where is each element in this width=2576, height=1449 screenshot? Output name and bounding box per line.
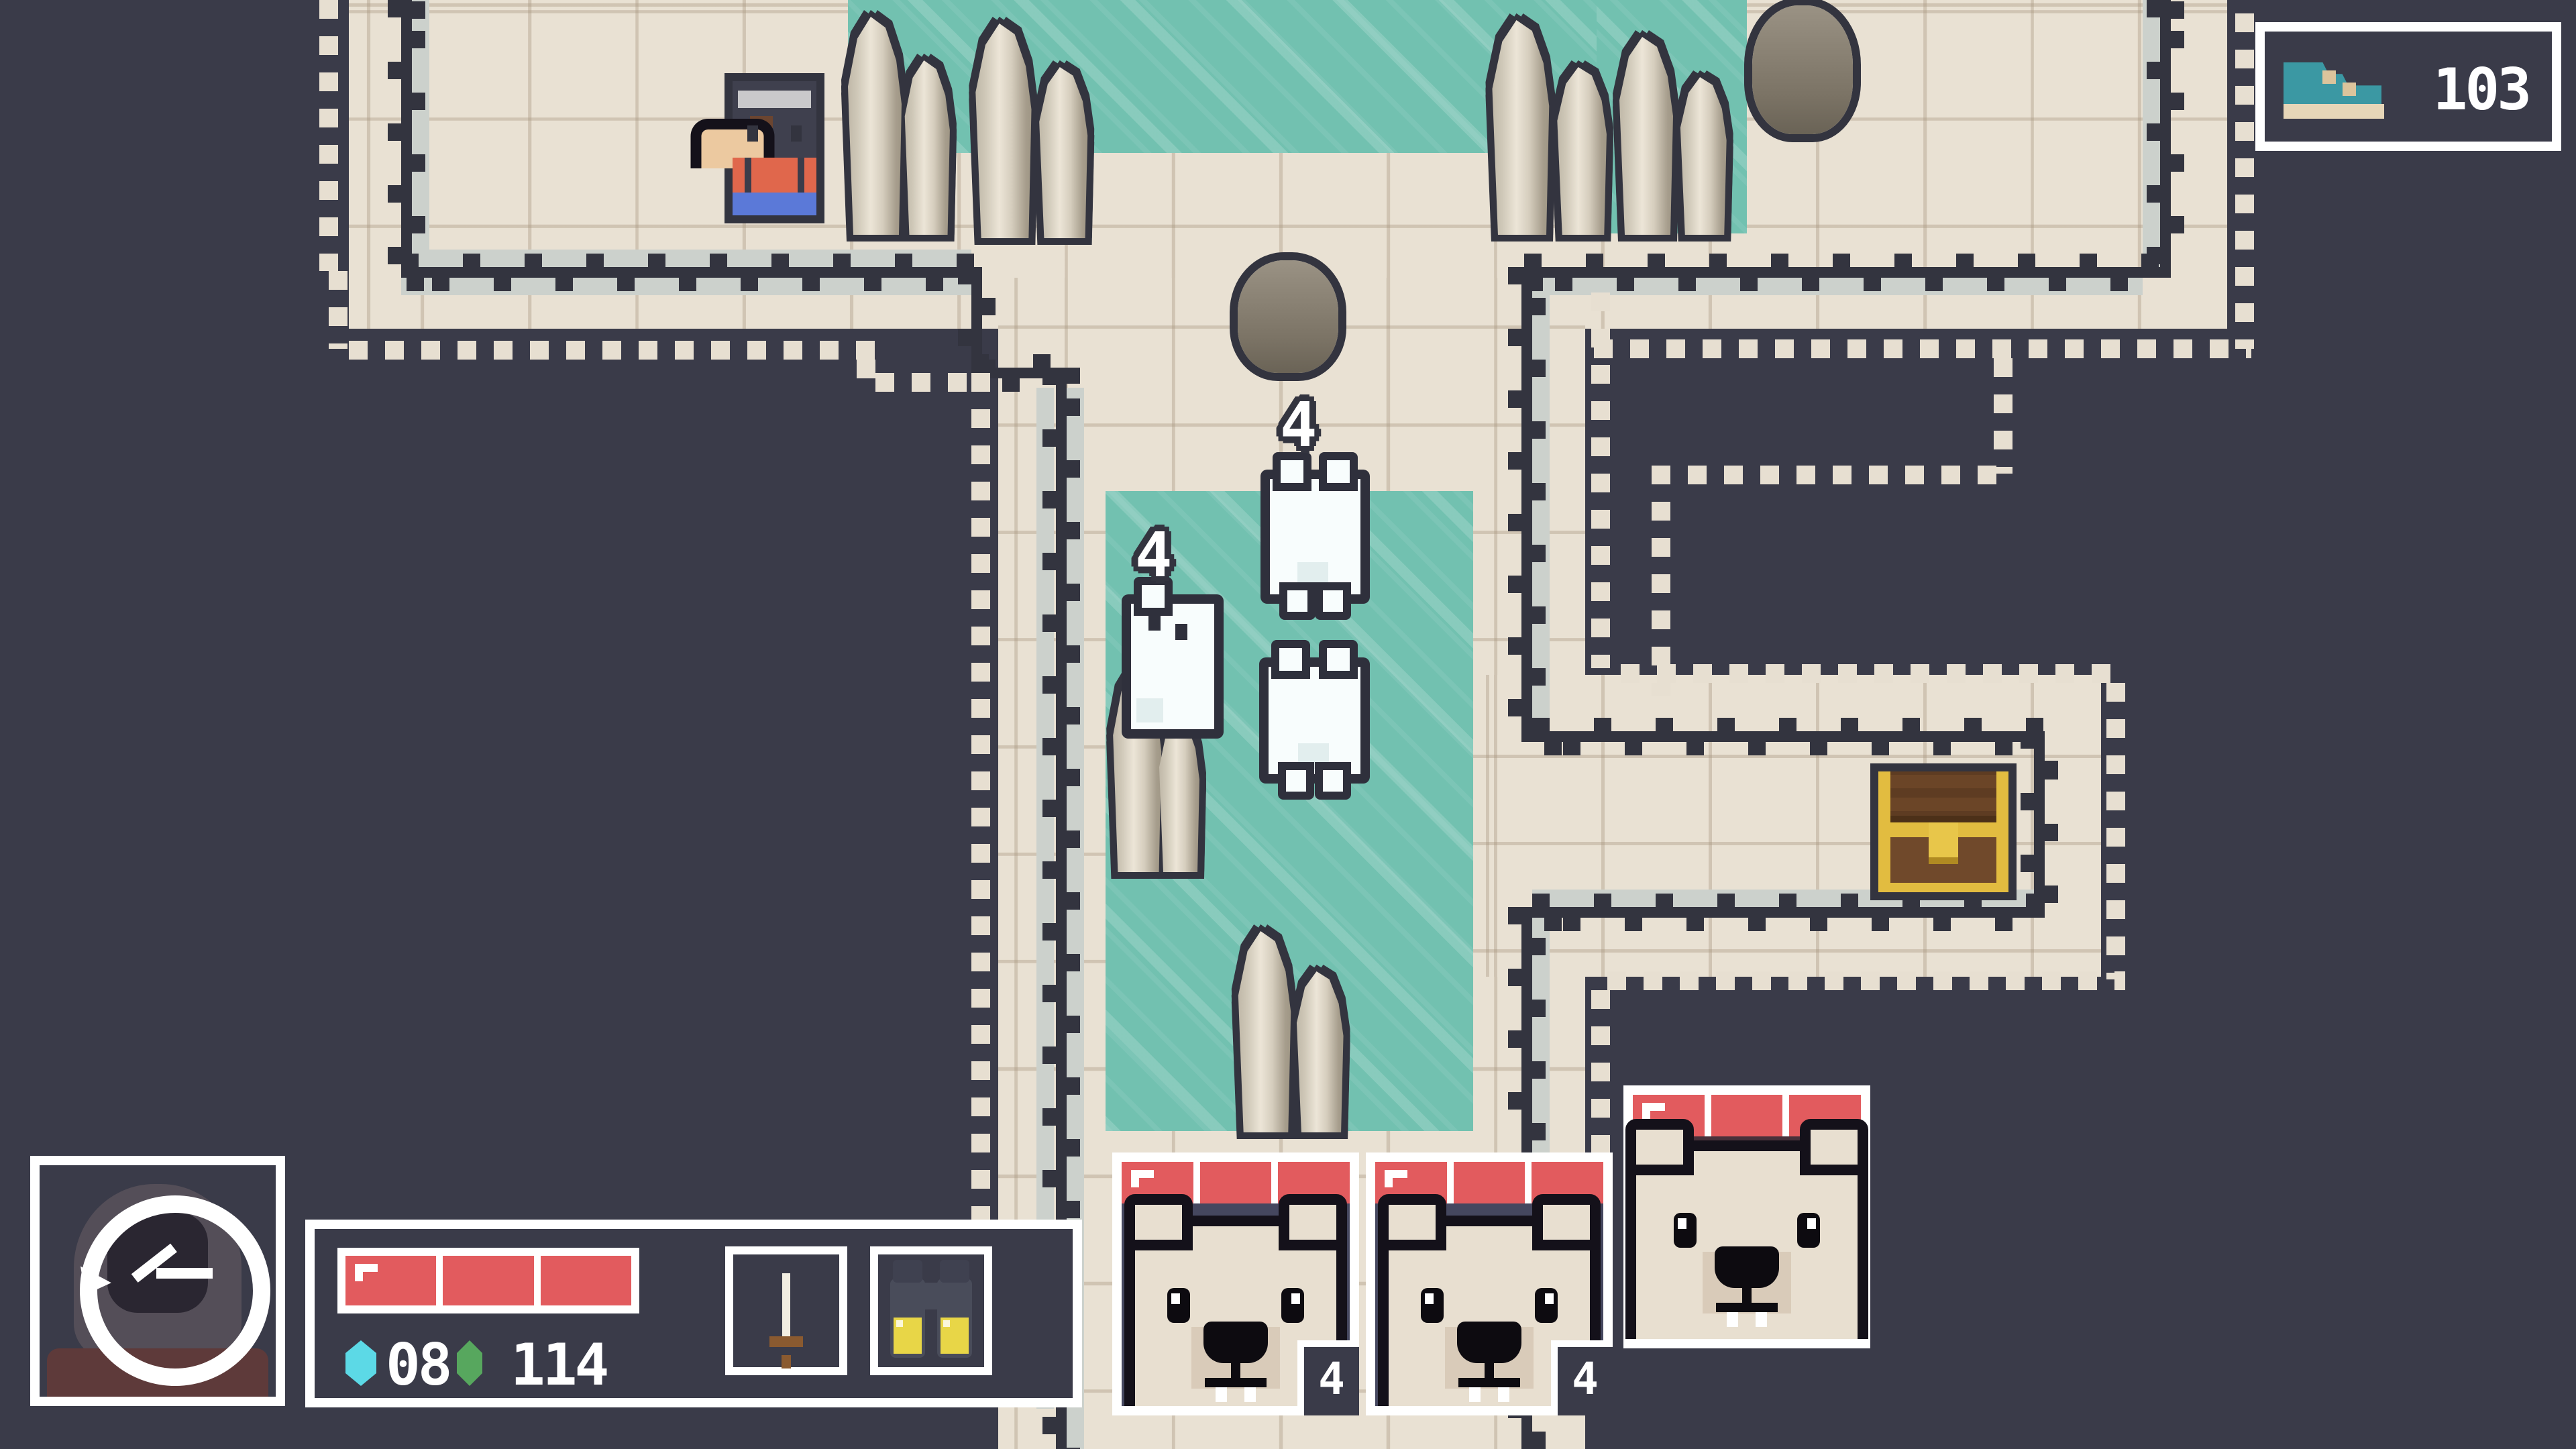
stalagmite-cluster: [1614, 37, 1733, 235]
wall: [401, 267, 982, 278]
wall: [1524, 267, 2171, 278]
player-hat: [738, 91, 811, 108]
boulder: [1238, 260, 1338, 373]
stalagmite-cluster: [843, 17, 957, 235]
sneaker-icon: [2284, 53, 2384, 120]
wall: [2034, 731, 2045, 918]
player-portrait-panel[interactable]: [30, 1156, 285, 1406]
player-hp-bar: [337, 1248, 639, 1313]
dotted-border: [1607, 971, 2125, 990]
party-card-bear-3[interactable]: [1623, 1085, 1870, 1348]
dotted-border: [1594, 339, 2251, 358]
dotted-border: [2235, 13, 2254, 349]
stats-panel: 08 114: [305, 1220, 1082, 1407]
binoculars-icon: [890, 1260, 972, 1360]
wall: [1521, 267, 1532, 742]
shoe-counter-badge: 103: [2255, 22, 2561, 151]
wall: [401, 0, 412, 276]
stalagmite-cluster: [1487, 20, 1614, 235]
polar-bear-enemy[interactable]: [1260, 470, 1370, 604]
cyan-gem-count: 08: [386, 1336, 450, 1394]
wall: [2160, 0, 2171, 276]
enemy-count-label: 4: [1280, 394, 1317, 456]
treasure-chest[interactable]: [1878, 771, 2008, 892]
party-card-bear-2[interactable]: 4: [1366, 1152, 1613, 1415]
polar-bear-enemy[interactable]: [1259, 657, 1370, 784]
bear-stack-count: 4: [1551, 1340, 1613, 1415]
dotted-border: [1652, 466, 1670, 696]
wall: [1532, 731, 2045, 742]
dotted-border: [349, 341, 875, 360]
sword-slot[interactable]: [725, 1246, 847, 1375]
game-screen: 4 4 103 08 114: [0, 0, 2576, 1449]
chest-lid: [1890, 771, 1996, 820]
green-gem-icon: [457, 1340, 482, 1386]
cyan-gem-icon: [345, 1340, 376, 1386]
bear-portrait: [1625, 1140, 1868, 1339]
stalagmite-cluster: [1233, 931, 1350, 1132]
binoculars-slot[interactable]: [870, 1246, 992, 1375]
bear-stack-count: 4: [1297, 1340, 1359, 1415]
dotted-border: [329, 271, 347, 349]
dotted-border: [1621, 664, 2120, 683]
stalagmite-cluster: [970, 23, 1095, 238]
dotted-border: [1591, 292, 1610, 668]
polar-bear-enemy[interactable]: [1122, 594, 1224, 739]
chest-latch: [1929, 822, 1958, 864]
dotted-border: [857, 360, 875, 386]
boulder: [1752, 5, 1853, 134]
wall: [1532, 907, 2045, 918]
dotted-border: [319, 0, 338, 271]
dotted-border: [875, 373, 971, 392]
enemy-count-label: 4: [1135, 525, 1172, 586]
party-card-bear-1[interactable]: 4: [1112, 1152, 1359, 1415]
player-character[interactable]: [733, 81, 816, 215]
dotted-border: [2106, 683, 2125, 979]
dotted-border: [1652, 466, 2012, 484]
shoe-counter-value: 103: [2433, 61, 2529, 119]
dotted-border: [1994, 358, 2012, 474]
green-gem-count: 114: [511, 1336, 606, 1394]
clock-icon: [80, 1195, 270, 1386]
